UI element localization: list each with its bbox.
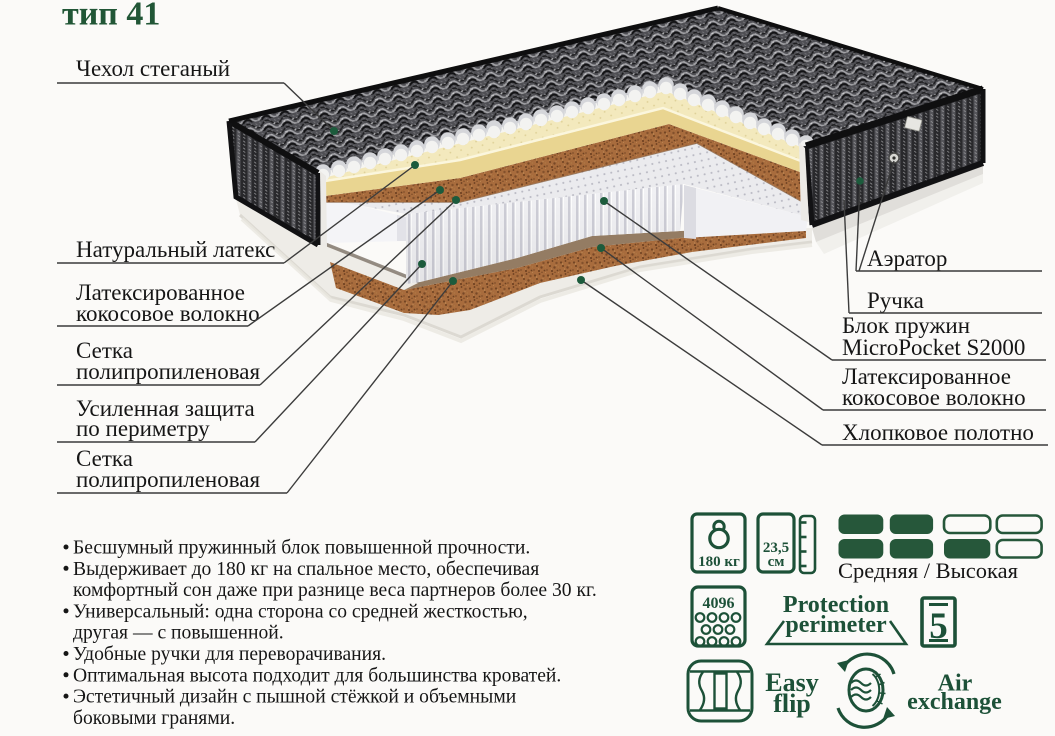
svg-text:Аэратор: Аэратор — [867, 246, 947, 271]
svg-text:кокосовое волокно: кокосовое волокно — [76, 301, 260, 326]
svg-text:Выдерживает до 180 кг на спаль: Выдерживает до 180 кг на спальное место,… — [73, 559, 539, 580]
svg-text:Удобные ручки для переворачива: Удобные ручки для переворачивания. — [73, 644, 386, 665]
svg-text:см: см — [768, 554, 785, 570]
svg-text:полипропиленовая: полипропиленовая — [76, 359, 260, 384]
svg-text:комфортный сон даже при разниц: комфортный сон даже при разнице веса пар… — [73, 580, 597, 601]
svg-text:Бесшумный пружинный блок повыш: Бесшумный пружинный блок повышенной проч… — [73, 538, 530, 559]
svg-text:Натуральный латекс: Натуральный латекс — [76, 237, 275, 262]
svg-text:perimeter: perimeter — [785, 612, 887, 638]
svg-text:кокосовое волокно: кокосовое волокно — [842, 385, 1026, 410]
svg-text:полипропиленовая: полипропиленовая — [76, 467, 260, 492]
svg-text:по периметру: по периметру — [76, 416, 210, 441]
svg-text:Эстетичный дизайн с пышной стё: Эстетичный дизайн с пышной стёжкой и объ… — [73, 687, 517, 708]
svg-text:Чехол стеганый: Чехол стеганый — [76, 56, 230, 81]
svg-text:flip: flip — [773, 689, 811, 718]
svg-text:4096: 4096 — [703, 595, 735, 612]
svg-text:Хлопковое полотно: Хлопковое полотно — [842, 420, 1034, 445]
svg-text:180 кг: 180 кг — [698, 554, 740, 570]
svg-text:exchange: exchange — [907, 689, 1002, 715]
svg-text:5: 5 — [929, 606, 948, 647]
svg-text:MicroPocket S2000: MicroPocket S2000 — [842, 335, 1025, 360]
svg-text:Средняя / Высокая: Средняя / Высокая — [838, 558, 1018, 583]
svg-text:Ручка: Ручка — [867, 288, 924, 313]
svg-text:другая — с повышенной.: другая — с повышенной. — [73, 623, 284, 644]
svg-text:Универсальный: одна сторона со: Универсальный: одна сторона со средней ж… — [73, 601, 528, 622]
svg-text:боковыми гранями.: боковыми гранями. — [73, 708, 235, 729]
svg-text:Оптимальная высота подходит дл: Оптимальная высота подходит для большинс… — [73, 665, 561, 686]
svg-text:тип 41: тип 41 — [62, 0, 160, 33]
